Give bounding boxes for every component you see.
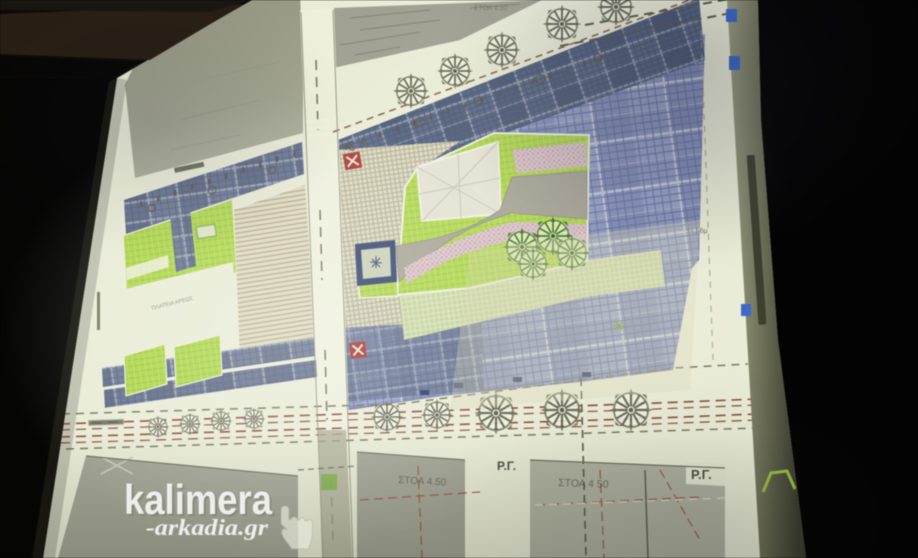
svg-text:-arkadia.gr: -arkadia.gr [146, 515, 269, 540]
